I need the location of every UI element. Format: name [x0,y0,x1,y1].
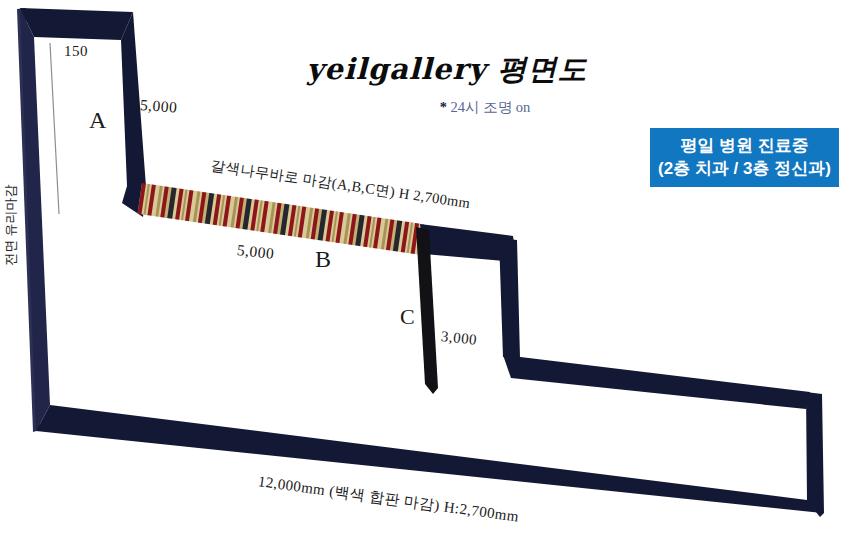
top-wall [20,8,133,40]
zone-a-label: A [89,108,106,132]
right-wall [806,392,824,517]
dim-5000-mid: 5,000 [236,242,275,261]
zone-c-label: C [400,306,415,328]
lighting-note: * 24시 조명 on [425,98,545,117]
hospital-notice-box: 평일 병원 진료중 (2층 치과 / 3층 정신과) [650,128,839,187]
floor-plan-canvas: yeilgallery 평면도 * 24시 조명 on 평일 병원 진료중 (2… [0,0,845,536]
asterisk-mark: * [440,99,447,115]
lighting-note-text: 24시 조명 on [451,99,531,115]
left-wall [20,8,50,431]
front-glass-note: 전면 유리마감 [2,163,18,287]
hospital-notice-line1: 평일 병원 진료중 [680,135,808,157]
lower-mid-wall [503,355,810,409]
dimension-line [50,43,59,214]
zone-b-label: B [315,247,331,271]
hospital-notice-line2: (2층 치과 / 3층 정신과) [658,158,831,180]
page-title: yeilgallery 평면도 [247,50,647,90]
dim-150: 150 [64,44,88,59]
mid-vertical-wall [499,238,520,358]
dim-5000-top: 5,000 [139,97,177,115]
